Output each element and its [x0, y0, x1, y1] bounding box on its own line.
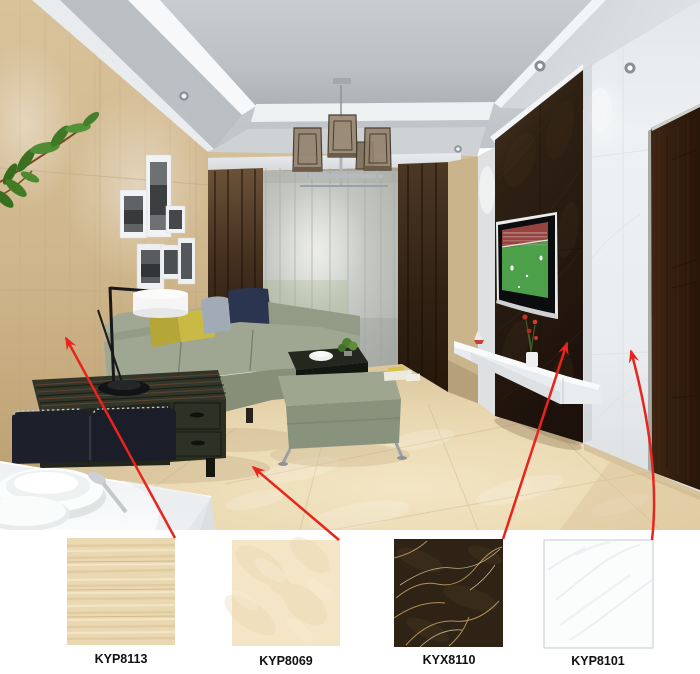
svg-text:KYP8101: KYP8101 [571, 654, 625, 668]
svg-text:KYP8113: KYP8113 [95, 652, 148, 666]
svg-text:KYP8069: KYP8069 [259, 654, 313, 668]
svg-text:KYX8110: KYX8110 [423, 653, 476, 667]
